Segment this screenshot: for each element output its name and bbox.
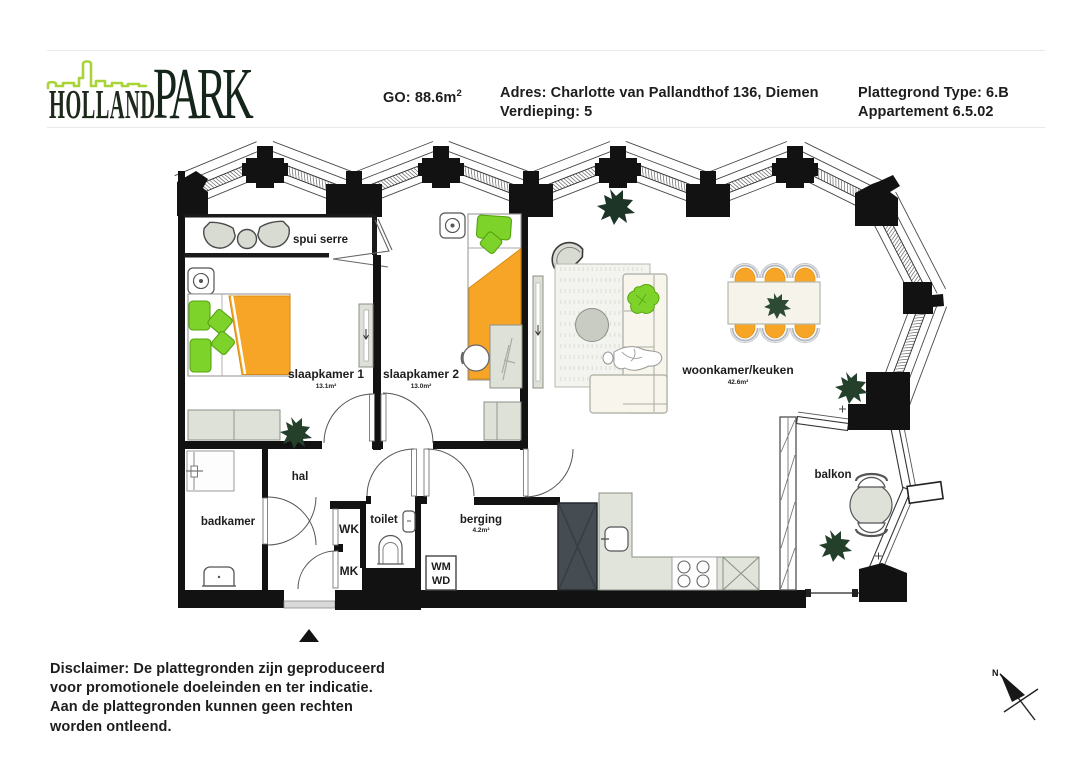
svg-text:WD: WD bbox=[432, 575, 450, 587]
svg-text:hal: hal bbox=[292, 471, 309, 483]
svg-text:spui serre: spui serre bbox=[293, 234, 348, 246]
svg-text:42.6m²: 42.6m² bbox=[728, 379, 749, 386]
svg-text:13.0m²: 13.0m² bbox=[411, 383, 432, 390]
svg-text:WK: WK bbox=[339, 522, 359, 536]
svg-text:balkon: balkon bbox=[814, 469, 851, 481]
svg-text:berging: berging bbox=[460, 514, 502, 526]
svg-text:badkamer: badkamer bbox=[201, 516, 256, 528]
svg-text:13.1m²: 13.1m² bbox=[316, 383, 337, 390]
svg-text:woonkamer/keuken: woonkamer/keuken bbox=[681, 363, 793, 377]
svg-text:N: N bbox=[992, 668, 999, 678]
svg-text:slaapkamer 2: slaapkamer 2 bbox=[383, 367, 459, 381]
svg-text:4.2m²: 4.2m² bbox=[473, 527, 491, 534]
svg-text:slaapkamer 1: slaapkamer 1 bbox=[288, 367, 364, 381]
svg-text:MK: MK bbox=[340, 564, 359, 578]
svg-text:toilet: toilet bbox=[370, 514, 398, 526]
svg-text:WM: WM bbox=[431, 561, 451, 573]
